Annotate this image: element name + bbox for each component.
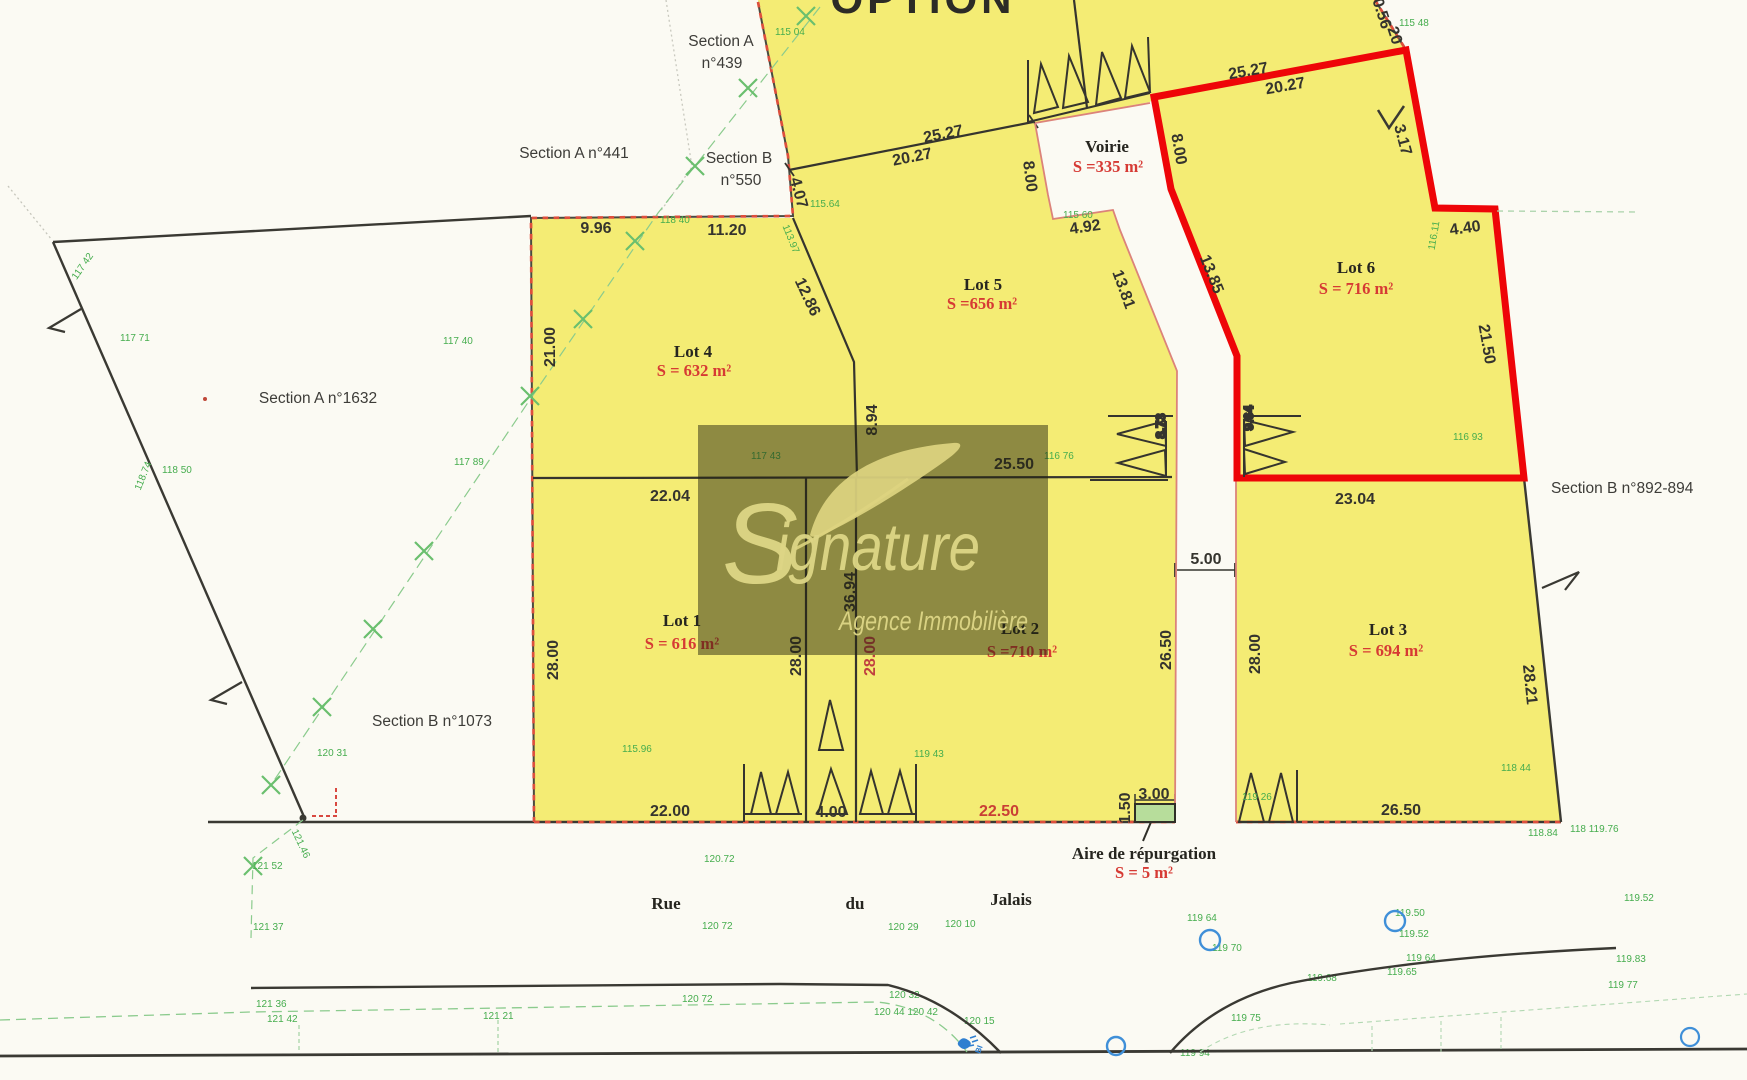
- svg-text:28.00: 28.00: [1247, 634, 1264, 674]
- svg-text:22.04: 22.04: [650, 488, 690, 505]
- svg-text:Lot 3: Lot 3: [1369, 620, 1407, 639]
- svg-text:28.00: 28.00: [545, 640, 562, 680]
- svg-text:119.50: 119.50: [1395, 908, 1425, 919]
- svg-text:120 72: 120 72: [682, 994, 713, 1005]
- svg-text:Lot 4: Lot 4: [674, 342, 713, 361]
- svg-text:120 10: 120 10: [945, 919, 976, 930]
- svg-text:120 32: 120 32: [889, 990, 920, 1001]
- svg-text:S = 694 m²: S = 694 m²: [1349, 641, 1423, 660]
- svg-text:Lot 6: Lot 6: [1337, 258, 1375, 277]
- svg-text:119.83: 119.83: [1616, 954, 1646, 965]
- svg-text:Section A n°441: Section A n°441: [519, 145, 629, 162]
- svg-text:115.96: 115.96: [622, 744, 652, 755]
- svg-text:118.84: 118.84: [1528, 828, 1558, 839]
- svg-text:26.50: 26.50: [1158, 630, 1175, 670]
- svg-text:119 77: 119 77: [1608, 980, 1638, 991]
- svg-text:Section B: Section B: [706, 150, 772, 167]
- svg-text:116 76: 116 76: [1044, 451, 1074, 462]
- svg-text:120.72: 120.72: [704, 854, 735, 865]
- svg-text:11.20: 11.20: [707, 222, 746, 239]
- svg-text:Lot 5: Lot 5: [964, 275, 1002, 294]
- svg-text:9.96: 9.96: [580, 220, 611, 237]
- svg-text:5.00: 5.00: [1190, 551, 1221, 568]
- svg-text:120 72: 120 72: [702, 921, 733, 932]
- svg-text:OPTION: OPTION: [830, 0, 1015, 22]
- svg-text:8.73: 8.73: [1153, 413, 1168, 438]
- svg-text:n°439: n°439: [702, 55, 743, 72]
- svg-text:Voirie: Voirie: [1085, 137, 1129, 156]
- svg-text:S =656 m²: S =656 m²: [947, 294, 1017, 313]
- svg-text:120 31: 120 31: [317, 748, 348, 759]
- svg-text:Lot 1: Lot 1: [663, 611, 701, 630]
- svg-text:118 44: 118 44: [1501, 763, 1531, 774]
- svg-text:119 94: 119 94: [1180, 1048, 1210, 1059]
- svg-text:119.65: 119.65: [1387, 967, 1417, 978]
- svg-text:3.00: 3.00: [1138, 786, 1169, 803]
- svg-text:9.64: 9.64: [1241, 405, 1256, 431]
- svg-text:Rue: Rue: [651, 894, 681, 913]
- svg-text:119.52: 119.52: [1399, 929, 1429, 940]
- svg-text:119.52: 119.52: [1624, 893, 1654, 904]
- svg-text:du: du: [846, 894, 865, 913]
- svg-text:23.04: 23.04: [1335, 491, 1375, 508]
- svg-text:121 52: 121 52: [252, 861, 283, 872]
- svg-text:21.00: 21.00: [542, 327, 559, 367]
- svg-text:119 75: 119 75: [1231, 1013, 1261, 1024]
- svg-text:120 44 120 42: 120 44 120 42: [874, 1007, 938, 1018]
- svg-text:26.50: 26.50: [1381, 802, 1421, 819]
- svg-text:115.64: 115.64: [810, 199, 840, 210]
- svg-text:120 29: 120 29: [888, 922, 919, 933]
- svg-text:S = 716 m²: S = 716 m²: [1319, 279, 1393, 298]
- svg-text:4.00: 4.00: [815, 804, 846, 821]
- svg-text:119 43: 119 43: [914, 749, 944, 760]
- svg-text:117 89: 117 89: [454, 457, 484, 468]
- svg-text:S = 632 m²: S = 632 m²: [657, 361, 731, 380]
- svg-text:117 40: 117 40: [443, 336, 473, 347]
- svg-text:Jalais: Jalais: [990, 890, 1032, 909]
- svg-text:22.50: 22.50: [979, 803, 1019, 820]
- svg-text:1.50: 1.50: [1117, 792, 1134, 823]
- svg-text:Aire de répurgation: Aire de répurgation: [1072, 844, 1217, 863]
- svg-text:118 50: 118 50: [162, 465, 192, 476]
- svg-text:119 26: 119 26: [1242, 792, 1272, 803]
- svg-text:Section A: Section A: [688, 33, 754, 50]
- svg-text:117 71: 117 71: [120, 333, 150, 344]
- svg-text:121 42: 121 42: [267, 1014, 298, 1025]
- svg-text:116 93: 116 93: [1453, 432, 1483, 443]
- svg-text:118 119.76: 118 119.76: [1570, 824, 1619, 835]
- svg-text:121 37: 121 37: [253, 922, 284, 933]
- svg-text:ignature: ignature: [776, 510, 980, 585]
- svg-text:Section B n°892-894: Section B n°892-894: [1551, 480, 1694, 497]
- svg-text:Agence Immobilière: Agence Immobilière: [837, 606, 1028, 636]
- svg-text:S =335 m²: S =335 m²: [1073, 157, 1143, 176]
- svg-text:118 40: 118 40: [660, 215, 690, 226]
- svg-text:115 04: 115 04: [775, 27, 805, 38]
- svg-text:22.00: 22.00: [650, 803, 690, 820]
- svg-text:121 36: 121 36: [256, 999, 287, 1010]
- svg-text:S = 5 m²: S = 5 m²: [1115, 863, 1173, 882]
- svg-text:n°550: n°550: [721, 172, 762, 189]
- svg-text:115 48: 115 48: [1399, 18, 1429, 29]
- svg-text:Section A n°1632: Section A n°1632: [259, 390, 377, 407]
- svg-text:119 64: 119 64: [1187, 913, 1217, 924]
- svg-text:Section B n°1073: Section B n°1073: [372, 713, 492, 730]
